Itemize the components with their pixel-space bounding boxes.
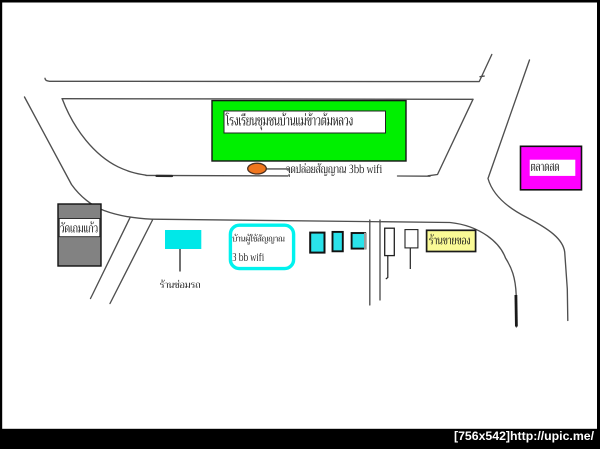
svg-text:[756x542]http://upic.me/: [756x542]http://upic.me/ (454, 429, 595, 443)
